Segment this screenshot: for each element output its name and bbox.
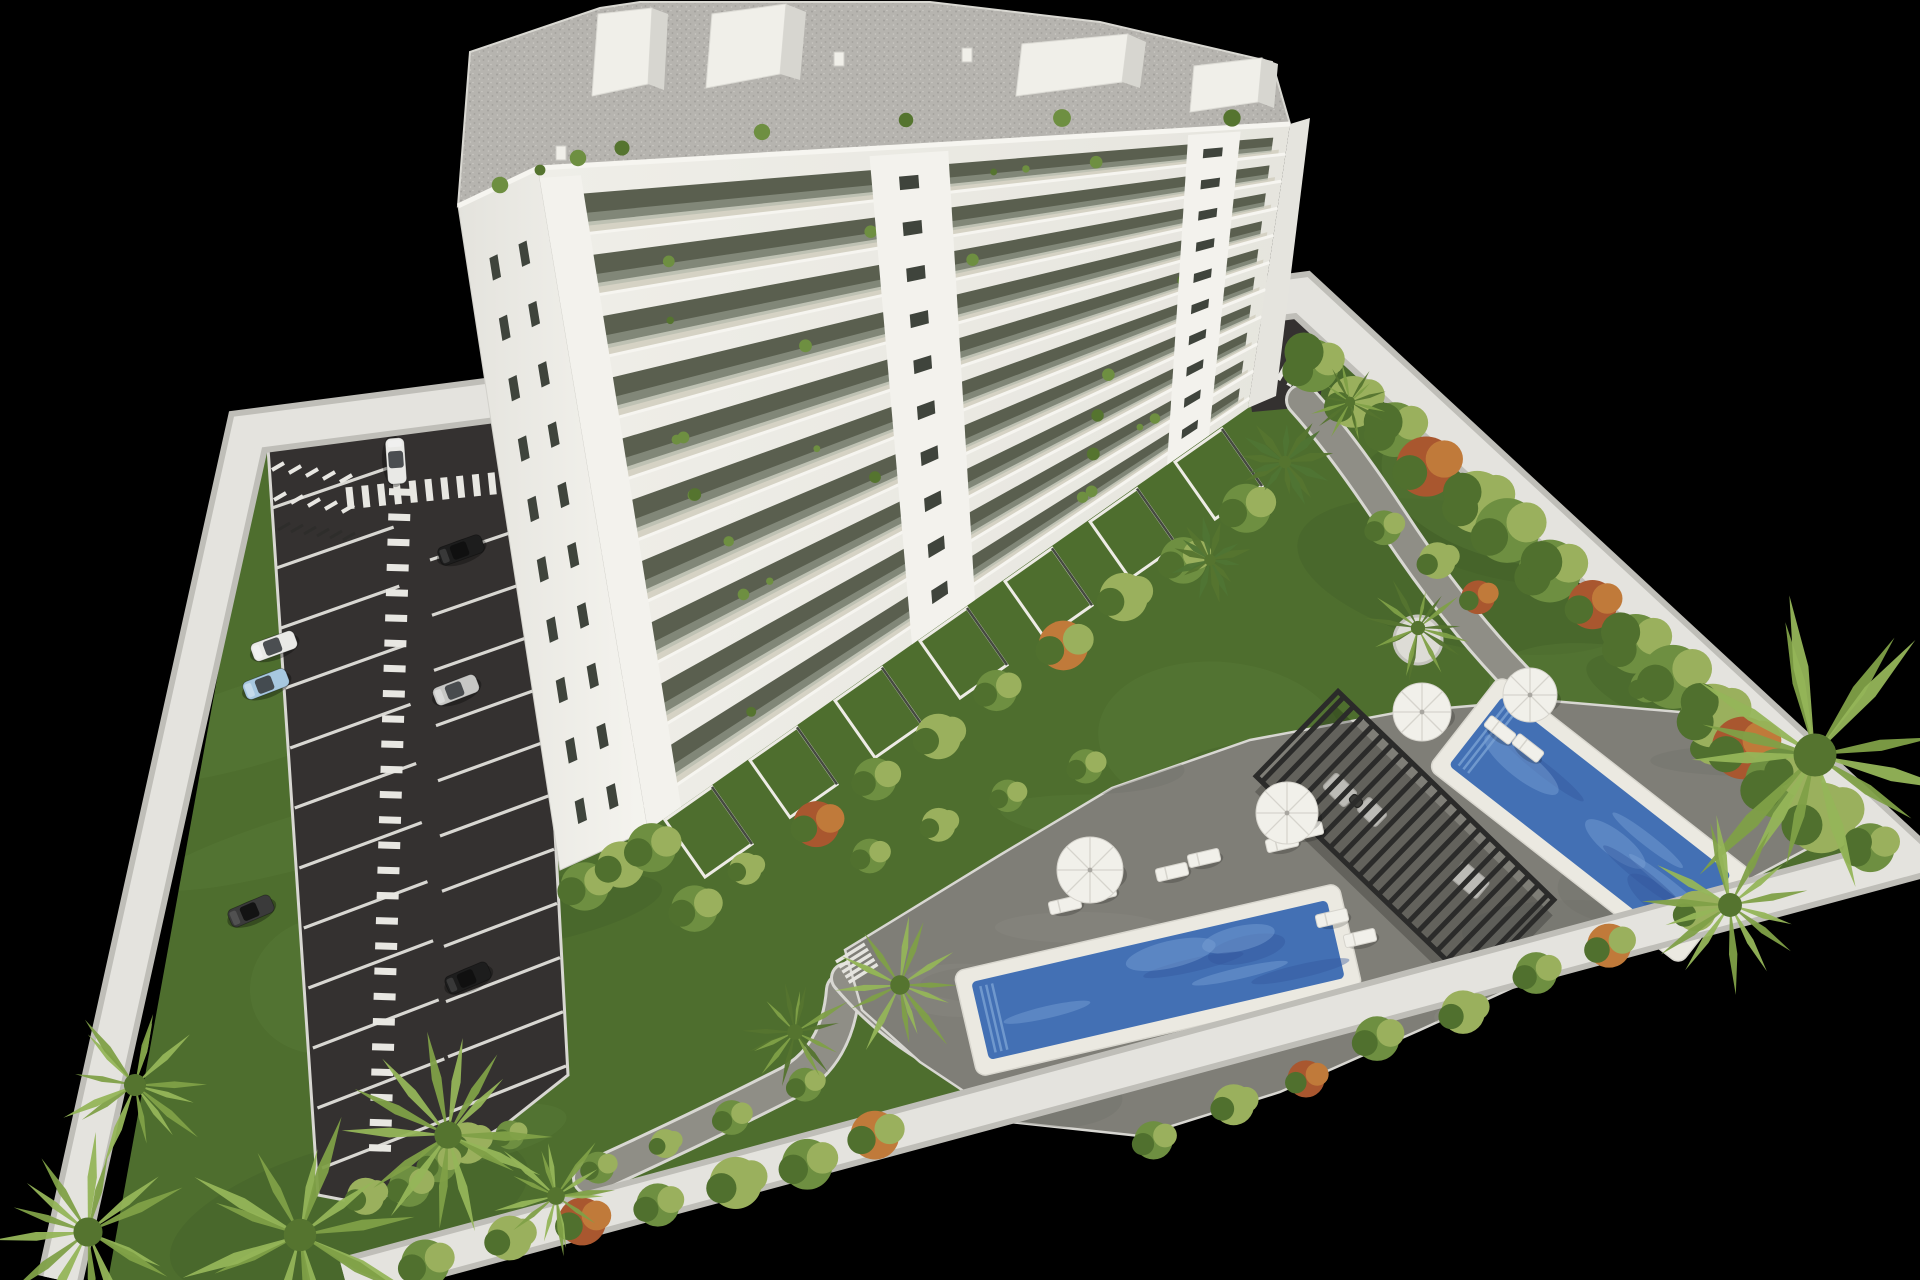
zebra-stripe (475, 474, 477, 496)
zebra-stripe (384, 668, 406, 669)
zebra-stripe (386, 593, 408, 594)
zebra-stripe (428, 479, 430, 501)
roof-terrace-plant (1053, 109, 1071, 127)
zebra-stripe (375, 946, 397, 947)
zebra-stripe (365, 485, 367, 507)
facade-window (899, 175, 919, 190)
zebra-stripe (376, 921, 398, 922)
zebra-stripe (374, 971, 396, 972)
balcony-plant (724, 536, 734, 546)
hedge-tree (1284, 332, 1323, 371)
balcony-plant (689, 488, 702, 501)
zebra-stripe (387, 567, 409, 568)
zebra-stripe (374, 996, 396, 997)
roof-terrace-plant (492, 177, 509, 194)
zebra-stripe (383, 694, 405, 695)
balcony-plant (799, 339, 812, 352)
site-plan-render (0, 0, 1920, 1280)
balcony-plant (990, 169, 997, 176)
balcony-plant (738, 589, 750, 601)
zebra-stripe (444, 477, 446, 499)
balcony-plant (813, 445, 820, 452)
zebra-stripe (380, 794, 402, 795)
balcony-plant (966, 254, 978, 266)
zebra-stripe (491, 473, 493, 495)
roof-terrace-plant (1223, 109, 1240, 126)
balcony-plant (766, 577, 773, 584)
balcony-plant (869, 471, 881, 483)
architectural-render-stage (0, 0, 1920, 1280)
roof-terrace-plant (899, 113, 913, 127)
balcony-plant (1137, 424, 1144, 431)
roof-vent (962, 48, 972, 62)
zebra-stripe (380, 484, 382, 506)
balcony-plant (864, 225, 877, 238)
zebra-stripe (388, 517, 410, 518)
rooftop-structure (706, 4, 786, 88)
roof-terrace-plant (614, 140, 629, 155)
zebra-stripe (385, 618, 407, 619)
zebra-stripe (412, 481, 414, 503)
zebra-stripe (381, 769, 403, 770)
zebra-stripe (384, 643, 406, 644)
balcony-plant (1077, 492, 1088, 503)
balcony-plant (1091, 409, 1103, 421)
balcony-plant (1090, 156, 1103, 169)
zebra-stripe (382, 719, 404, 720)
zebra-stripe (459, 476, 461, 498)
roof-terrace-plant (754, 124, 770, 140)
zebra-stripe (379, 820, 401, 821)
zebra-stripe (371, 1072, 393, 1073)
balcony-plant (667, 317, 674, 324)
roof-terrace-plant (570, 150, 586, 166)
balcony-plant (746, 707, 756, 717)
zebra-stripe (370, 1122, 392, 1123)
zebra-stripe (369, 1148, 391, 1149)
zebra-stripe (377, 870, 399, 871)
roof-vent (556, 146, 566, 160)
zebra-stripe (381, 744, 403, 745)
zebra-stripe (387, 542, 409, 543)
balcony-plant (1022, 165, 1029, 172)
zebra-stripe (373, 1022, 395, 1023)
rooftop-structure (592, 8, 652, 96)
zebra-stripe (372, 1047, 394, 1048)
roof-terrace-plant (535, 165, 546, 176)
zebra-stripe (377, 895, 399, 896)
balcony-plant (663, 255, 675, 267)
hedge-tree (1521, 541, 1563, 583)
hedge-tree (1601, 612, 1640, 651)
balcony-plant (1102, 368, 1115, 381)
hedge-tree (1443, 473, 1481, 511)
balcony-plant (1150, 413, 1161, 424)
roof-vent (834, 52, 844, 66)
balcony-plant (1087, 448, 1100, 461)
zebra-stripe (378, 845, 400, 846)
balcony-plant (678, 432, 690, 444)
